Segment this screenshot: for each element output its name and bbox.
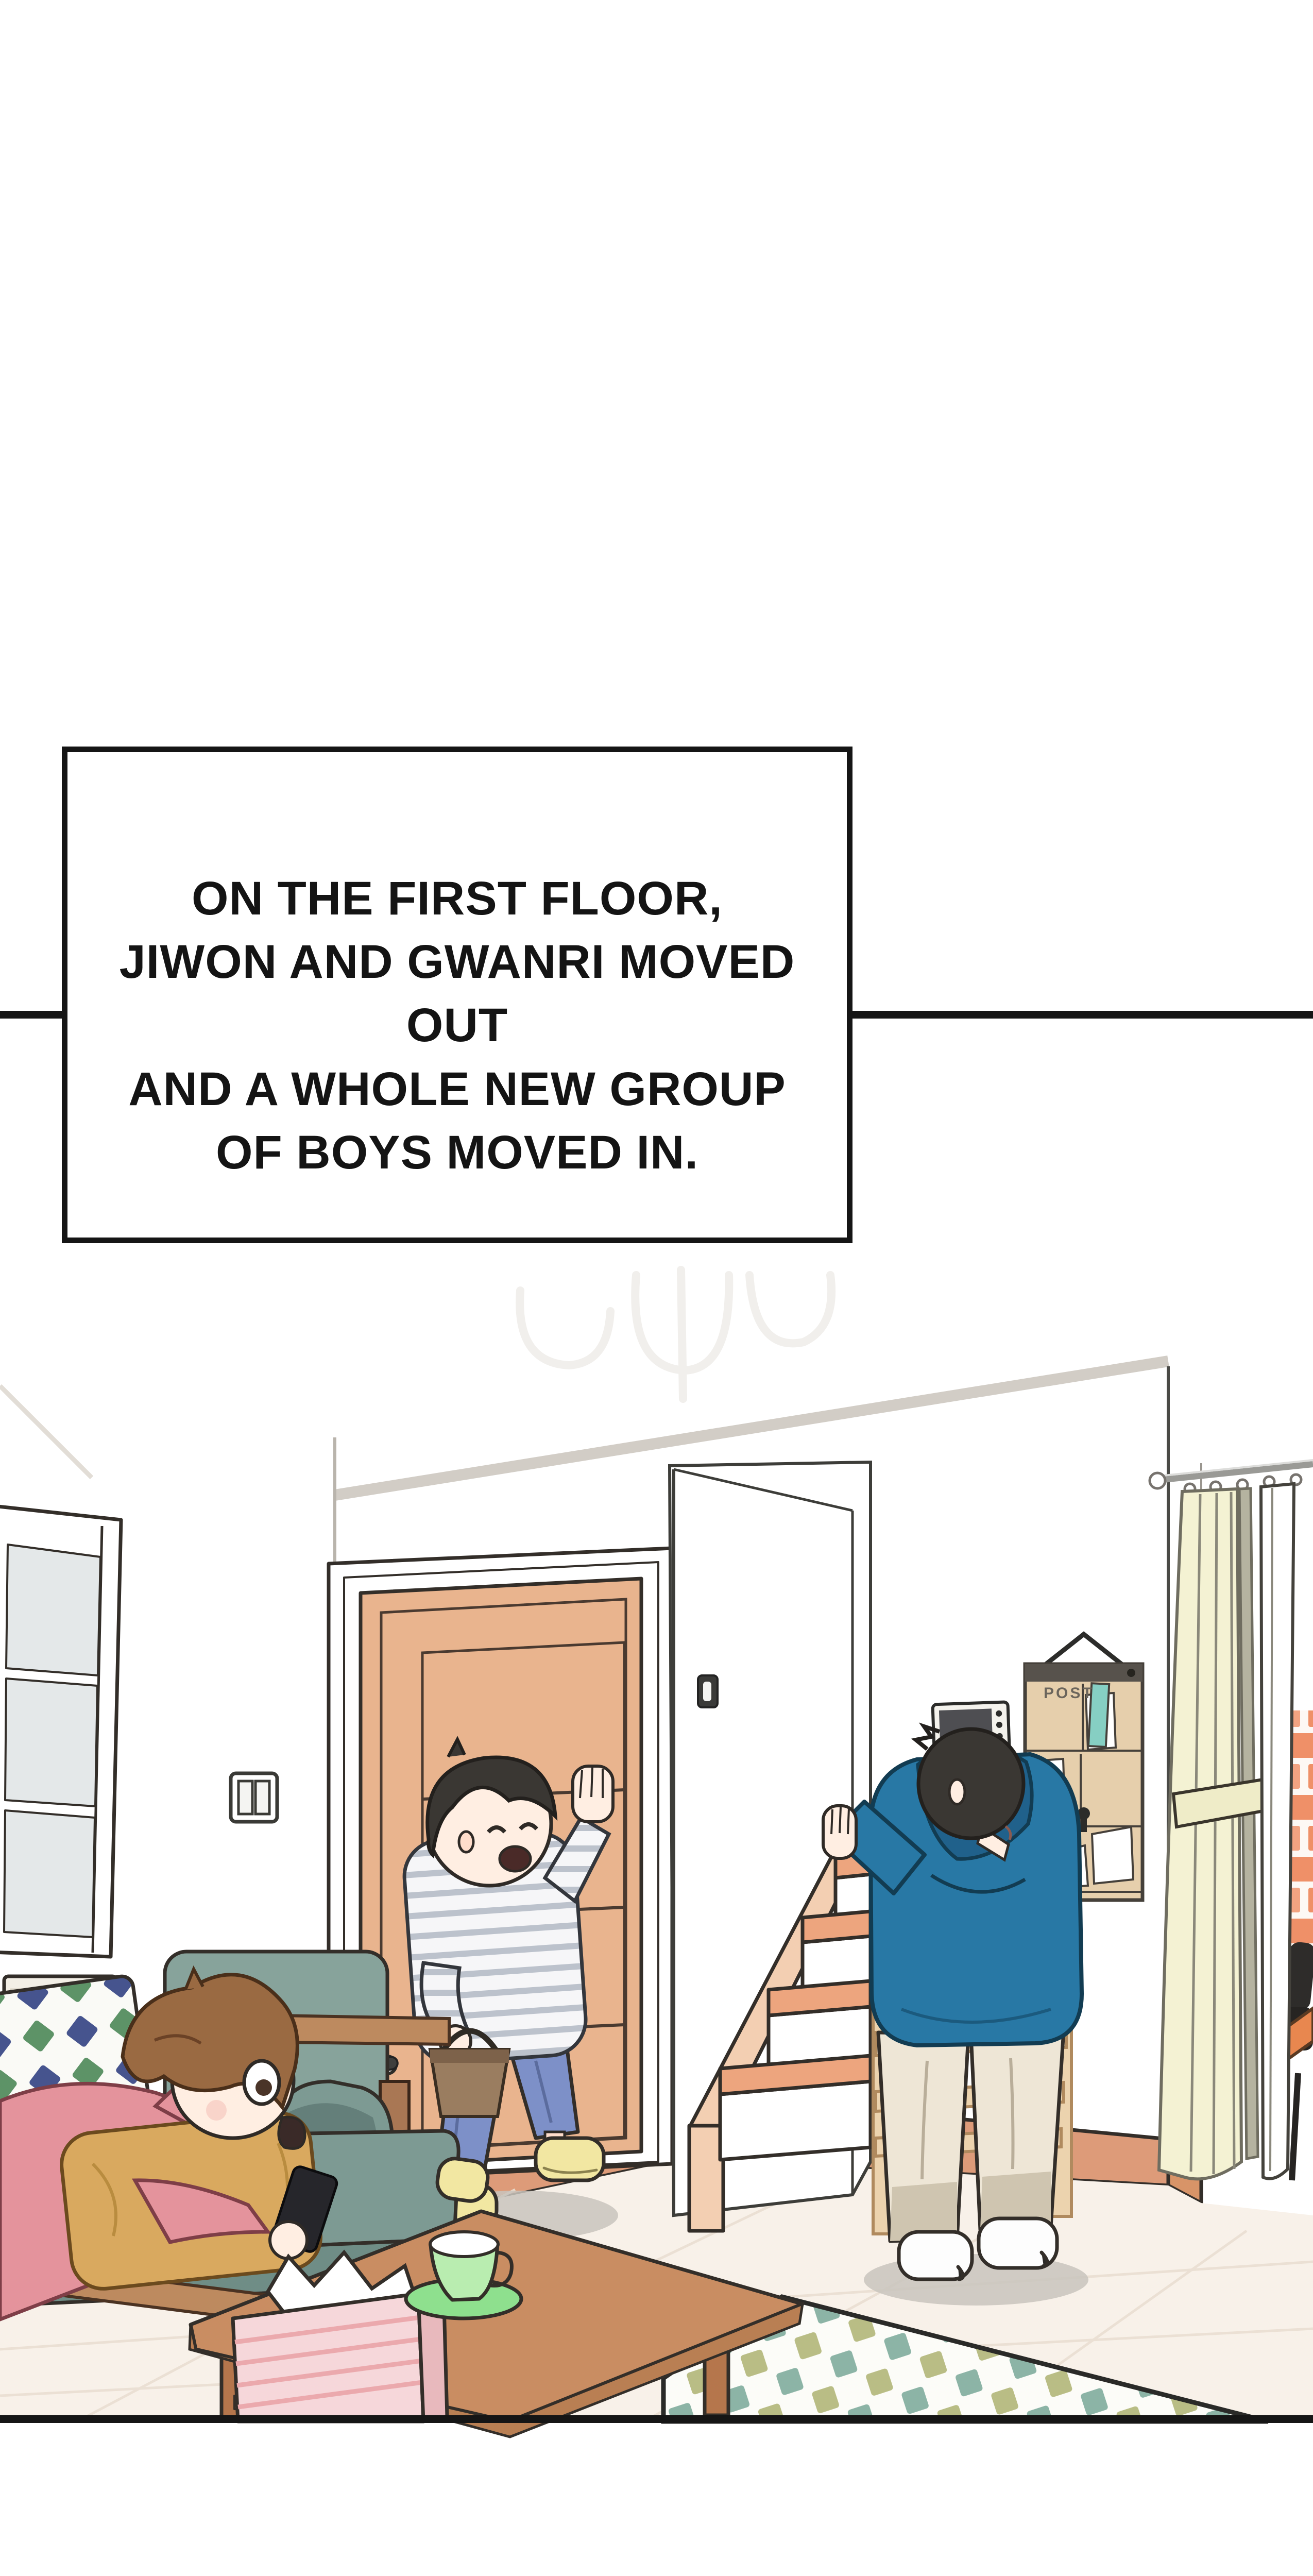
panel-bottom-border xyxy=(0,2415,1313,2423)
striped-hand-wave xyxy=(573,1766,613,1822)
hoodie-hand xyxy=(823,1806,856,1858)
curtain-cream-panel xyxy=(1159,1488,1266,2179)
watermark-squiggle xyxy=(520,1270,831,1399)
curtain-window xyxy=(1150,1460,1313,2180)
narration-box: ON THE FIRST FLOOR, JIWON AND GWANRI MOV… xyxy=(62,747,852,1243)
organizer-post-label: POST xyxy=(1044,1685,1094,1702)
curtain-sheer-panel xyxy=(1261,1484,1294,2179)
light-switch xyxy=(231,1773,277,1822)
comic-page: ON THE FIRST FLOOR, JIWON AND GWANRI MOV… xyxy=(0,0,1313,2576)
sofa-wood-rail xyxy=(278,2015,449,2044)
door-latch xyxy=(698,1675,718,1707)
narration-text: ON THE FIRST FLOOR, JIWON AND GWANRI MOV… xyxy=(67,867,847,1184)
yellow-slipper xyxy=(435,2157,490,2204)
window xyxy=(0,1504,121,1957)
illustration-panel: POST xyxy=(0,0,1313,2576)
ceiling-trim xyxy=(0,1361,1168,1567)
